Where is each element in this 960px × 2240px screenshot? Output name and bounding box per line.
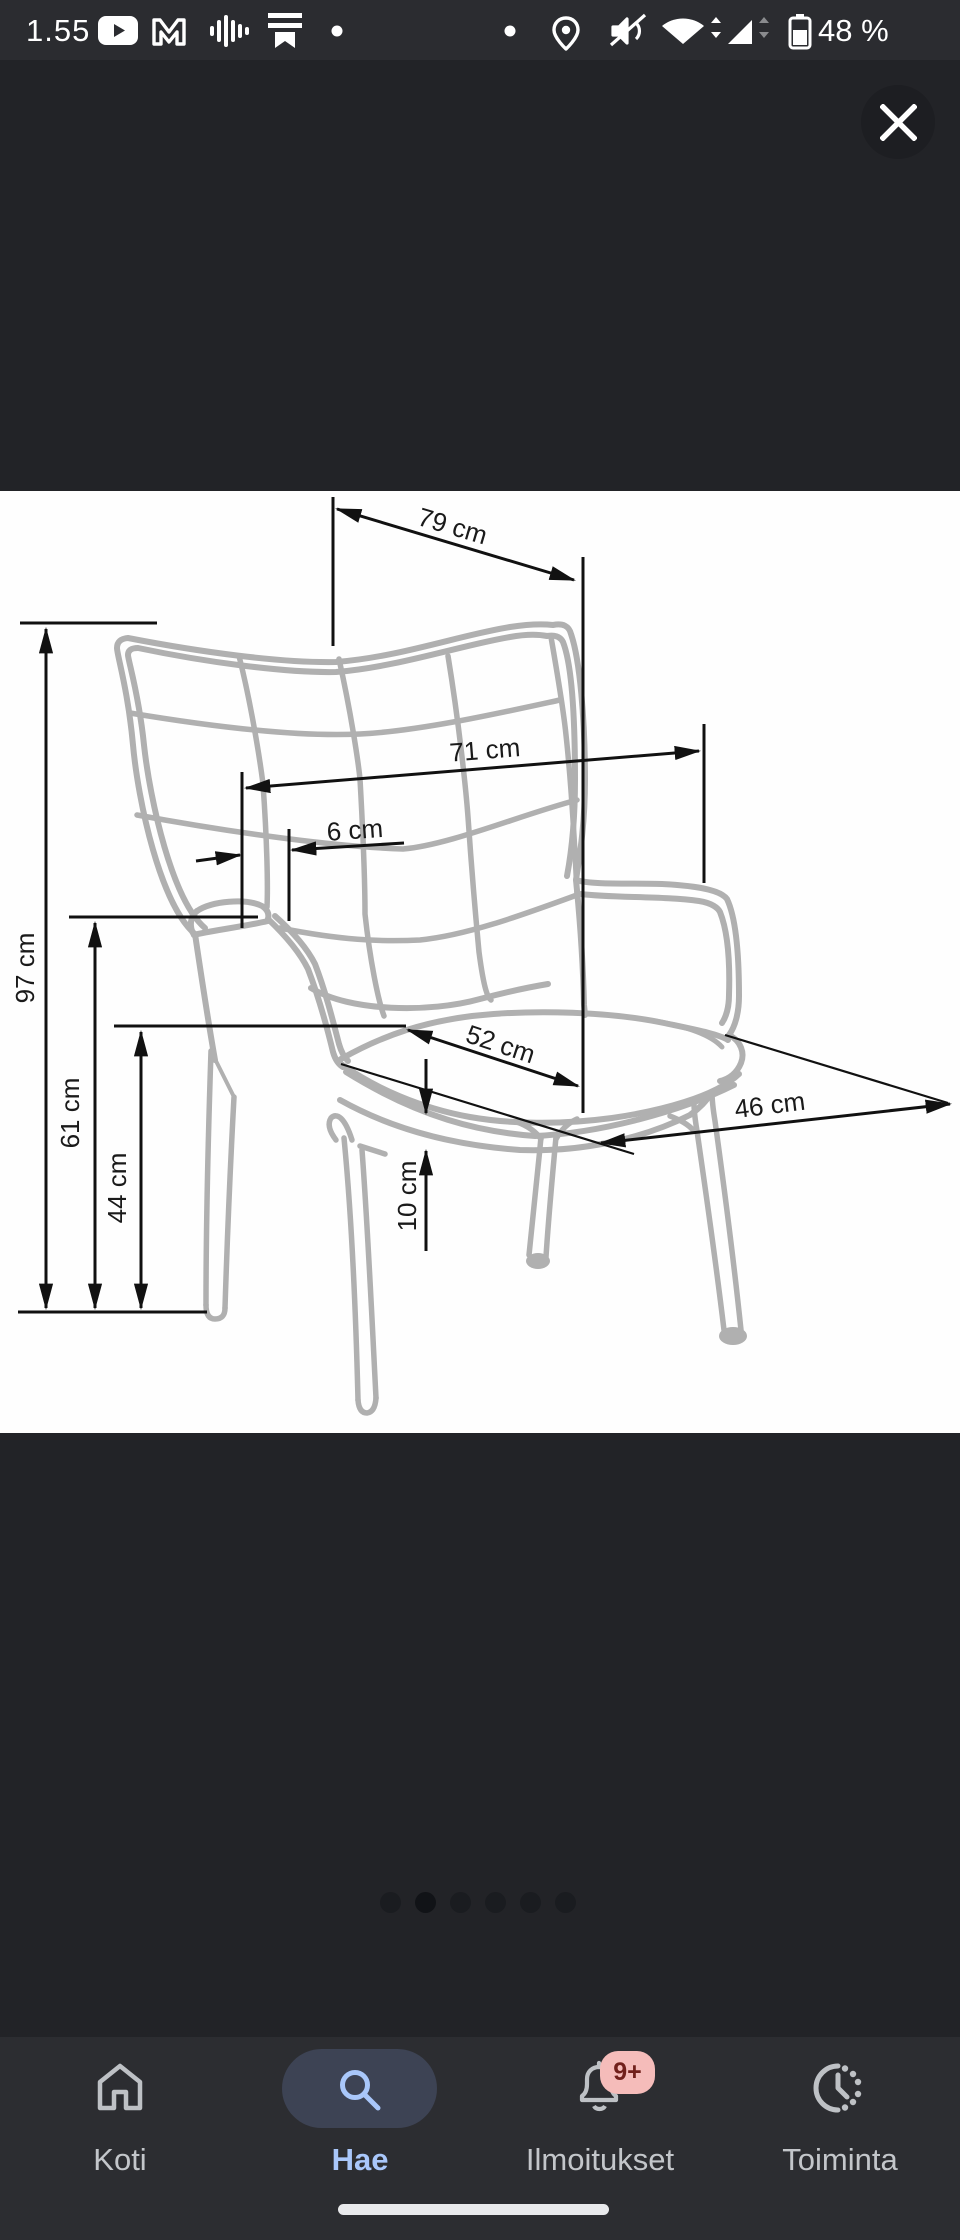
svg-text:71 cm: 71 cm <box>448 732 521 767</box>
svg-text:97 cm: 97 cm <box>10 933 40 1004</box>
svg-text:46 cm: 46 cm <box>733 1086 807 1124</box>
svg-text:10 cm: 10 cm <box>392 1161 422 1232</box>
svg-text:44 cm: 44 cm <box>102 1153 132 1224</box>
svg-text:61 cm: 61 cm <box>55 1078 85 1149</box>
svg-text:6 cm: 6 cm <box>326 813 384 847</box>
